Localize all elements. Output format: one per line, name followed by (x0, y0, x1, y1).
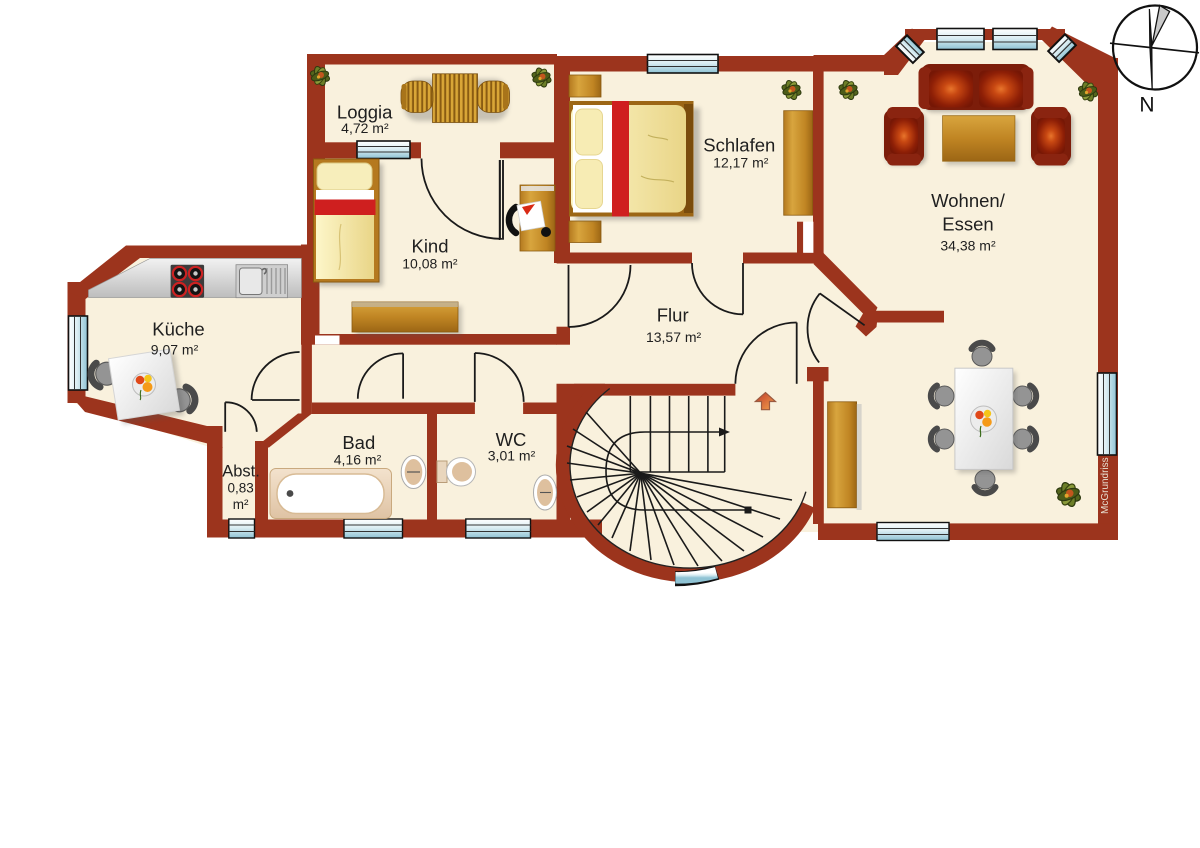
svg-text:34,38 m²: 34,38 m² (940, 238, 996, 254)
svg-text:m²: m² (233, 497, 249, 512)
svg-text:3,01 m²: 3,01 m² (488, 448, 536, 464)
svg-text:Flur: Flur (657, 304, 689, 325)
svg-text:Abst.: Abst. (222, 462, 260, 480)
svg-text:N: N (1139, 94, 1154, 117)
svg-text:10,08 m²: 10,08 m² (402, 255, 458, 271)
svg-text:9,07 m²: 9,07 m² (151, 341, 199, 357)
svg-text:McGrundriss: McGrundriss (1100, 457, 1111, 514)
svg-text:Bad: Bad (342, 432, 375, 453)
svg-text:Kind: Kind (411, 236, 448, 257)
svg-text:13,57 m²: 13,57 m² (646, 329, 702, 345)
svg-text:12,17 m²: 12,17 m² (713, 154, 769, 170)
svg-text:Essen: Essen (942, 214, 993, 235)
svg-text:Wohnen/: Wohnen/ (931, 190, 1006, 211)
svg-text:Schlafen: Schlafen (703, 135, 775, 156)
svg-text:0,83: 0,83 (227, 481, 253, 496)
svg-text:4,72 m²: 4,72 m² (341, 120, 389, 136)
svg-text:Küche: Küche (152, 319, 204, 340)
svg-text:4,16 m²: 4,16 m² (334, 452, 382, 468)
